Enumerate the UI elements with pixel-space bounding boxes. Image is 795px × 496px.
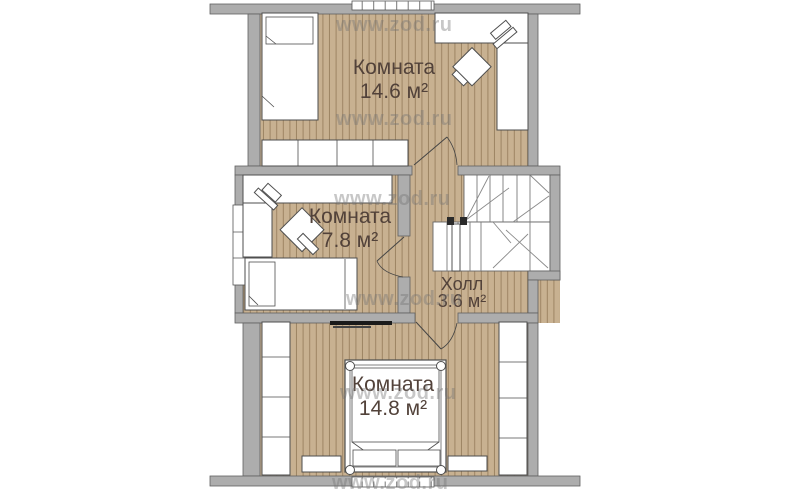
- floor-plan: Комната 14.6 м² Комната 7.8 м² Холл 3.6 …: [0, 0, 795, 496]
- desk-return-icon: [497, 43, 528, 130]
- room-name: Комната: [294, 205, 406, 229]
- window-top-icon: [352, 1, 434, 10]
- room-label-top: Комната 14.6 м²: [330, 56, 458, 104]
- room-label-middle: Комната 7.8 м²: [294, 205, 406, 253]
- wardrobe-right-icon: [499, 322, 527, 475]
- room-area: 3.6 м²: [422, 293, 502, 310]
- newel-post-icon: [447, 217, 454, 225]
- desk-return-icon: [243, 203, 272, 257]
- room-area: 7.8 м²: [294, 229, 406, 253]
- room-name: Комната: [329, 373, 457, 397]
- wardrobe-icon: [262, 140, 408, 166]
- nightstand-icon: [302, 456, 341, 472]
- room-area: 14.8 м²: [329, 397, 457, 421]
- wardrobe-left-icon: [262, 322, 290, 475]
- room-label-bottom: Комната 14.8 м²: [329, 373, 457, 421]
- tv-icon: [330, 321, 392, 325]
- room-name: Комната: [330, 56, 458, 80]
- newel-post-icon: [460, 217, 467, 225]
- window-bottom-icon: [352, 477, 434, 487]
- room-label-hall: Холл 3.6 м²: [422, 276, 502, 310]
- room-area: 14.6 м²: [330, 80, 458, 104]
- nightstand-icon: [448, 456, 487, 471]
